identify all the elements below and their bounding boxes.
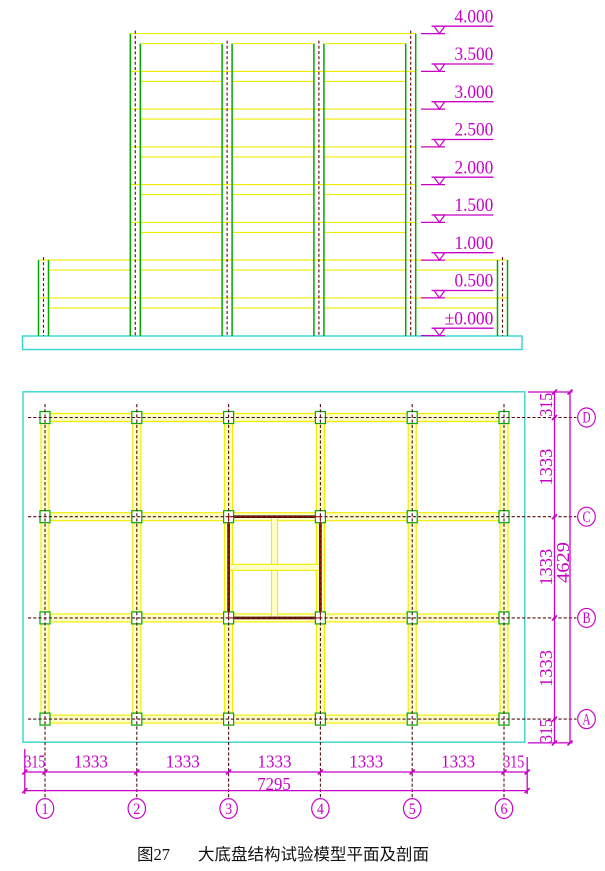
svg-text:315: 315	[24, 752, 45, 772]
svg-text:1.500: 1.500	[455, 196, 494, 216]
svg-text:3: 3	[225, 801, 232, 818]
svg-text:1333: 1333	[536, 449, 556, 486]
svg-text:1333: 1333	[258, 752, 292, 772]
svg-text:1333: 1333	[441, 752, 475, 772]
svg-text:C: C	[583, 509, 591, 526]
svg-text:B: B	[583, 610, 591, 627]
svg-text:5: 5	[409, 801, 416, 818]
svg-text:D: D	[583, 410, 591, 427]
svg-text:1333: 1333	[74, 752, 108, 772]
svg-text:6: 6	[501, 801, 508, 818]
svg-text:图27: 图27	[137, 845, 170, 864]
svg-text:1333: 1333	[349, 752, 383, 772]
svg-text:1.000: 1.000	[455, 234, 494, 254]
svg-text:±0.000: ±0.000	[445, 309, 494, 329]
svg-text:大底盘结构试验模型平面及剖面: 大底盘结构试验模型平面及剖面	[198, 845, 429, 864]
svg-text:3.500: 3.500	[455, 45, 494, 65]
svg-text:A: A	[583, 711, 592, 728]
svg-text:4629: 4629	[553, 542, 573, 583]
svg-text:1: 1	[42, 801, 49, 818]
svg-text:1333: 1333	[166, 752, 200, 772]
svg-text:2: 2	[133, 801, 140, 818]
svg-text:0.500: 0.500	[455, 272, 494, 292]
svg-text:4: 4	[317, 801, 324, 818]
svg-text:1333: 1333	[536, 650, 556, 687]
svg-text:3.000: 3.000	[455, 83, 494, 103]
svg-text:315: 315	[536, 719, 556, 743]
svg-text:315: 315	[503, 752, 524, 772]
svg-text:7295: 7295	[257, 774, 291, 794]
svg-text:2.500: 2.500	[455, 121, 494, 141]
svg-text:315: 315	[536, 393, 556, 417]
svg-text:4.000: 4.000	[455, 7, 494, 27]
svg-text:2.000: 2.000	[455, 158, 494, 178]
